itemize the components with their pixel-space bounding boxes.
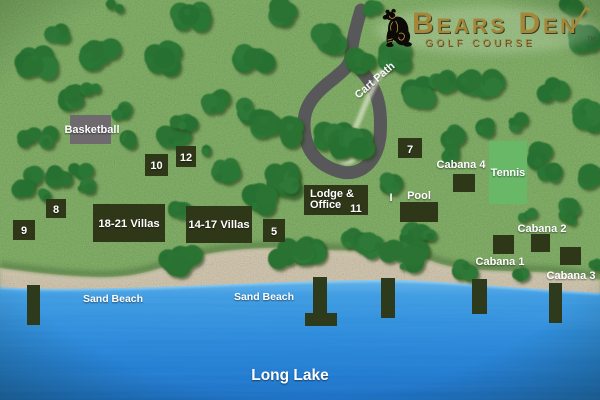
svg-text:GOLF COURSE: GOLF COURSE xyxy=(425,38,535,49)
svg-text:Cabana 4: Cabana 4 xyxy=(437,159,487,171)
svg-text:5: 5 xyxy=(271,226,277,238)
svg-text:TM: TM xyxy=(587,37,596,43)
svg-text:14-17 Villas: 14-17 Villas xyxy=(188,219,249,231)
svg-text:I: I xyxy=(389,192,392,204)
svg-text:12: 12 xyxy=(180,152,192,164)
svg-text:Long Lake: Long Lake xyxy=(251,367,329,384)
svg-text:Pool: Pool xyxy=(407,190,431,202)
svg-text:Basketball: Basketball xyxy=(64,124,119,136)
svg-text:18-21 Villas: 18-21 Villas xyxy=(98,218,159,230)
svg-text:7: 7 xyxy=(407,144,413,156)
svg-text:8: 8 xyxy=(53,204,59,216)
svg-text:10: 10 xyxy=(150,160,162,172)
svg-text:Tennis: Tennis xyxy=(491,167,526,179)
svg-text:Office: Office xyxy=(310,199,341,211)
svg-text:Sand Beach: Sand Beach xyxy=(83,293,143,305)
svg-text:Cabana 1: Cabana 1 xyxy=(476,256,525,268)
svg-text:Sand Beach: Sand Beach xyxy=(234,291,294,303)
svg-text:9: 9 xyxy=(21,225,27,237)
svg-text:Cabana 2: Cabana 2 xyxy=(518,223,567,235)
svg-text:11: 11 xyxy=(350,203,362,215)
svg-text:Cabana 3: Cabana 3 xyxy=(547,270,596,282)
